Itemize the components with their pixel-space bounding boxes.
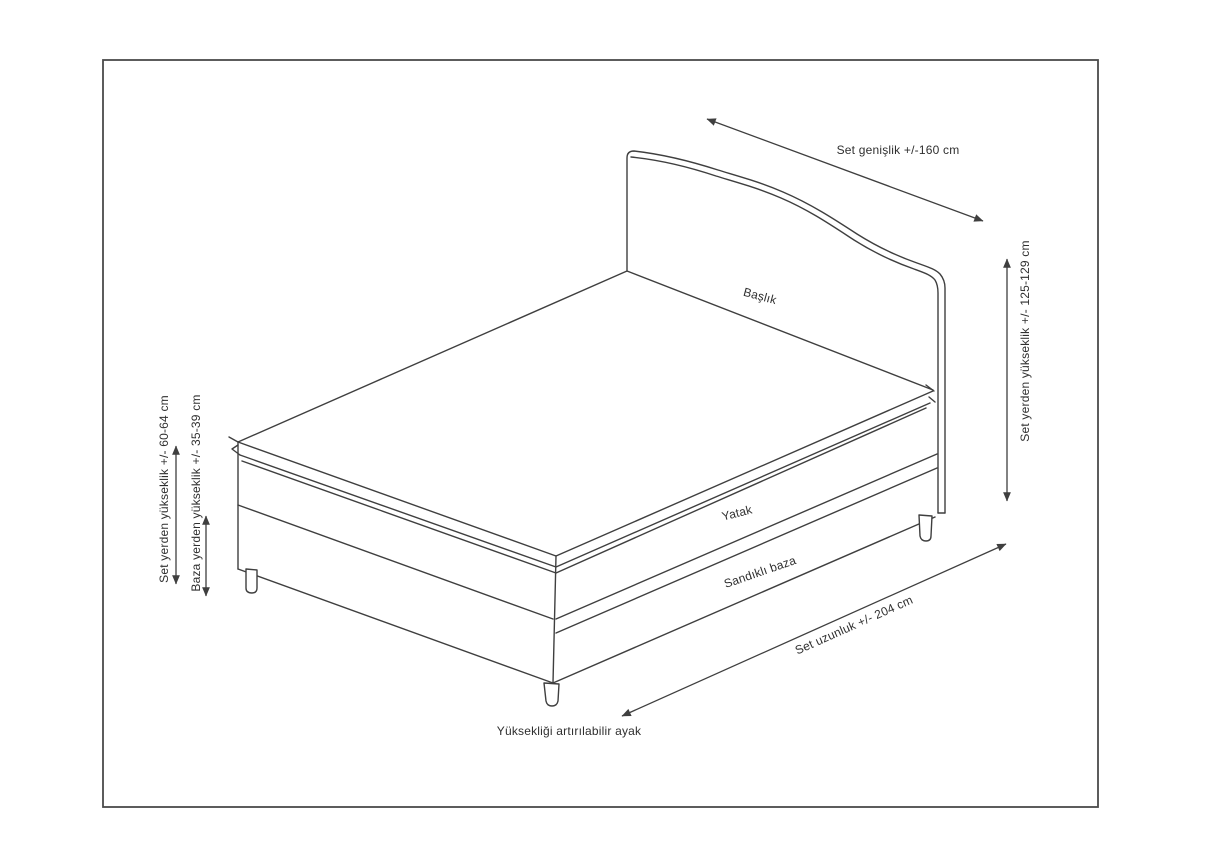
adjustable-foot-label: Yüksekliği artırılabilir ayak bbox=[497, 725, 642, 737]
bed-dimension-diagram: Set genişlik +/-160 cm Set yerden yüksek… bbox=[0, 0, 1214, 857]
dimension-line-width bbox=[707, 119, 983, 221]
set-height-label: Set yerden yükseklik +/- 60-64 cm bbox=[158, 395, 170, 583]
base-height-label: Baza yerden yükseklik +/- 35-39 cm bbox=[190, 394, 202, 591]
leg-left bbox=[246, 569, 257, 593]
mattress-top-face bbox=[238, 271, 933, 556]
diagram-frame bbox=[103, 60, 1098, 807]
headboard-outer-edge bbox=[627, 151, 945, 513]
headboard-inner-edge bbox=[631, 157, 938, 513]
mattress-piping-seams bbox=[240, 403, 930, 573]
bed-drawing bbox=[229, 151, 945, 706]
set-total-height-label: Set yerden yükseklik +/- 125-129 cm bbox=[1019, 240, 1031, 441]
leg-front bbox=[544, 683, 559, 706]
set-width-label: Set genişlik +/-160 cm bbox=[837, 144, 960, 156]
mattress-base-seam-side bbox=[238, 505, 553, 619]
dimension-lines bbox=[176, 119, 1007, 716]
leg-right bbox=[919, 515, 932, 541]
